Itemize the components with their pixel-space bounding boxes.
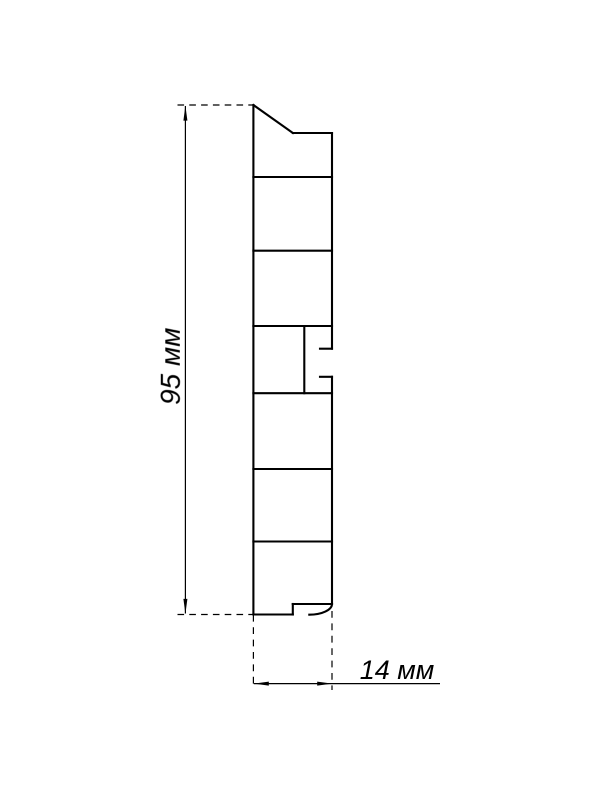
svg-text:95 мм: 95 мм (155, 328, 186, 405)
svg-text:14 мм: 14 мм (360, 655, 435, 685)
